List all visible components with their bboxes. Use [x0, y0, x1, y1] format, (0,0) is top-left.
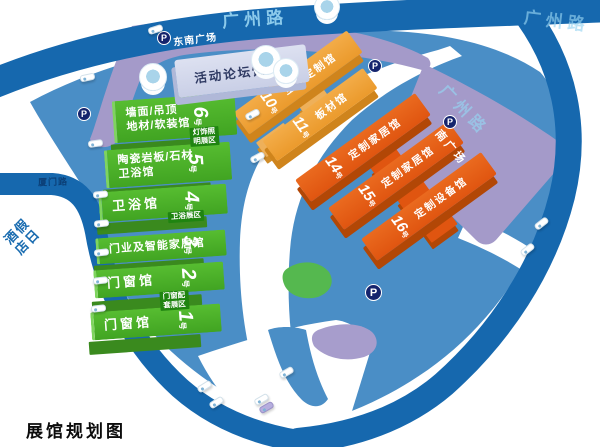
hall-number: 15号 — [355, 182, 381, 210]
lighting-zone-tag: 灯饰照 明展区 — [189, 126, 219, 147]
tank-cylinder — [139, 63, 167, 91]
parking-icon: P — [368, 59, 382, 73]
hall-name-line1: 门业及智能家居馆 — [109, 236, 227, 258]
page-title: 展馆规划图 — [26, 417, 126, 442]
venue-map: 10号 全屋定制馆 11号 板材馆 14号 定制家居馆 15号 定制家居馆 16… — [0, 0, 600, 447]
hall-number: 3号 — [180, 235, 201, 255]
hall-number: 16号 — [388, 213, 414, 241]
hall-name-line1: 门窗馆 — [104, 309, 222, 333]
hall-number: 5号 — [185, 153, 206, 173]
parking-icon: P — [77, 107, 91, 121]
hall-number: 4号 — [181, 191, 202, 211]
parking-icon: P — [157, 31, 171, 45]
hall-name-line1: 卫浴馆 — [112, 190, 228, 214]
window-accessory-zone-tag: 门窗配 套展区 — [159, 290, 189, 311]
tank-cylinder — [273, 58, 299, 84]
hall-number: 1号 — [175, 310, 196, 330]
road-label-xiamen: 厦门路 — [38, 174, 68, 188]
road-label-guangzhou: 广州路 — [221, 3, 289, 33]
hall-name-line1: 门窗馆 — [107, 267, 225, 291]
hall-number: 6号 — [190, 106, 211, 126]
hall-number: 14号 — [322, 154, 348, 182]
hall-number: 2号 — [178, 268, 199, 288]
parking-icon: P — [365, 284, 382, 301]
hall-number: 10号 — [257, 89, 283, 117]
